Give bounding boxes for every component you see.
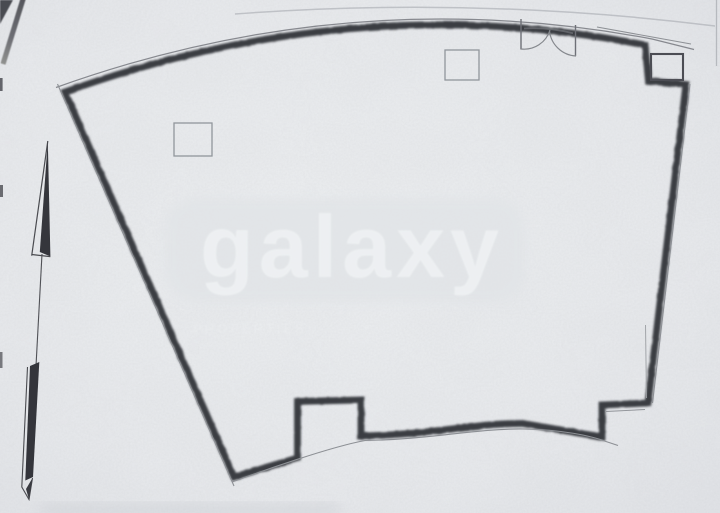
svg-text:PROPERTIES: PROPERTIES [193,321,307,336]
svg-text:galaxy: galaxy [200,197,504,296]
